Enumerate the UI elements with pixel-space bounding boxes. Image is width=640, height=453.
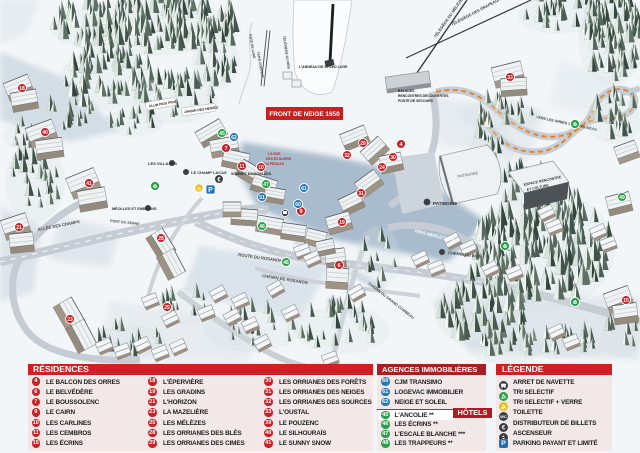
svg-text:48: 48: [283, 260, 289, 266]
svg-text:24: 24: [379, 165, 385, 171]
svg-text:60: 60: [295, 202, 301, 208]
svg-text:41: 41: [86, 181, 92, 187]
svg-text:33: 33: [507, 75, 513, 81]
svg-text:31: 31: [358, 191, 364, 197]
svg-text:♻: ♻: [573, 300, 578, 306]
svg-text:LA RUE: LA RUE: [268, 152, 281, 156]
svg-text:7: 7: [224, 146, 227, 152]
svg-text:9: 9: [299, 209, 302, 215]
svg-text:11: 11: [239, 164, 245, 170]
svg-text:L'ANNEAU DE SPEED LUGE: L'ANNEAU DE SPEED LUGE: [299, 65, 348, 69]
svg-text:RENCONTRES DÉCOUVERTES: RENCONTRES DÉCOUVERTES: [398, 93, 449, 98]
svg-text:21: 21: [16, 225, 22, 231]
svg-text:29: 29: [360, 141, 366, 147]
svg-text:♻: ♻: [573, 122, 578, 128]
svg-text:28: 28: [158, 236, 164, 242]
svg-text:62: 62: [231, 135, 237, 141]
svg-text:P: P: [208, 187, 213, 194]
svg-text:49: 49: [619, 195, 625, 201]
svg-text:♻: ♻: [197, 187, 202, 193]
svg-text:POSTE DE SECOURS: POSTE DE SECOURS: [398, 99, 434, 103]
svg-text:18: 18: [19, 86, 25, 92]
svg-text:61: 61: [301, 186, 307, 192]
svg-text:6: 6: [337, 263, 340, 269]
svg-text:♻: ♻: [153, 184, 158, 190]
svg-text:DES ÉCOLIERS: DES ÉCOLIERS: [266, 156, 292, 161]
svg-text:FRONT DE NEIGE 1650: FRONT DE NEIGE 1650: [269, 111, 340, 118]
svg-text:23: 23: [67, 317, 73, 323]
svg-text:45: 45: [219, 131, 225, 137]
svg-text:10: 10: [258, 165, 264, 171]
svg-text:♻: ♻: [503, 244, 508, 250]
svg-text:46: 46: [259, 224, 265, 230]
svg-text:MÉOLLES ET EMBRUNS: MÉOLLES ET EMBRUNS: [112, 206, 157, 211]
svg-text:32: 32: [344, 153, 350, 159]
svg-text:LE CHAMP LACAS: LE CHAMP LACAS: [191, 170, 227, 175]
svg-text:PATINOIRE: PATINOIRE: [433, 201, 457, 206]
svg-text:LES VILLAGES: LES VILLAGES: [148, 161, 177, 166]
svg-text:SOMMET MARCHANDS: SOMMET MARCHANDS: [231, 172, 272, 176]
svg-text:30: 30: [390, 155, 396, 161]
svg-text:40: 40: [42, 130, 48, 136]
svg-text:DU PENCAS: DU PENCAS: [264, 162, 285, 166]
svg-text:25: 25: [164, 305, 170, 311]
svg-text:15: 15: [623, 298, 629, 304]
svg-text:BALADES: BALADES: [398, 89, 415, 93]
svg-text:51: 51: [259, 195, 265, 201]
svg-text:47: 47: [263, 182, 269, 188]
svg-text:19: 19: [339, 220, 345, 226]
